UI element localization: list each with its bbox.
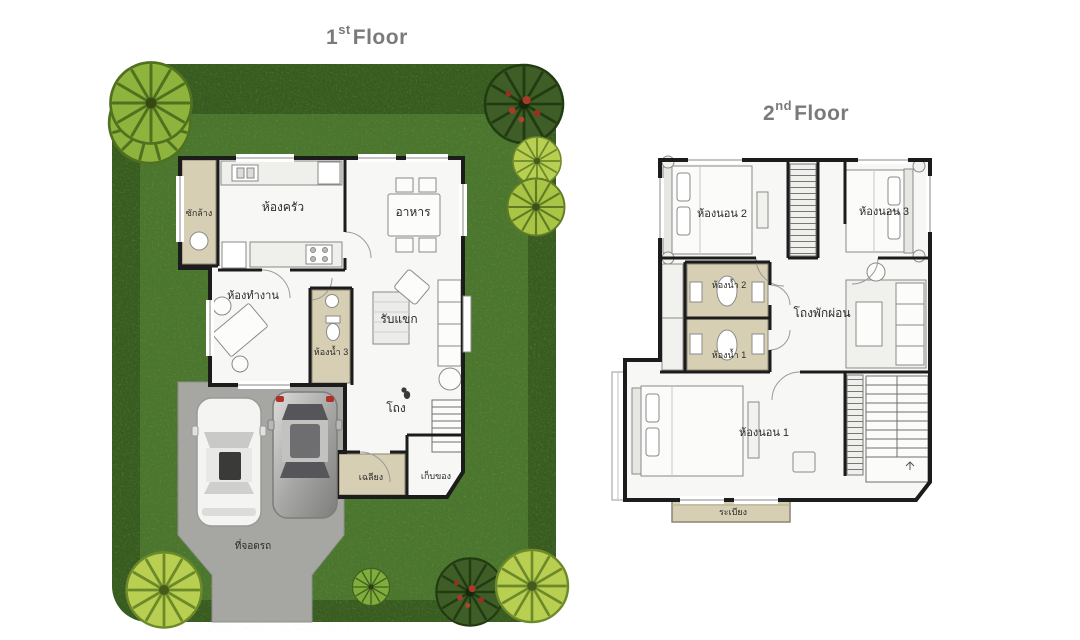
label-office: ห้องทำงาน bbox=[227, 290, 279, 302]
label-carpark: ที่จอดรถ bbox=[235, 538, 271, 552]
floor2-title-word: Floor bbox=[794, 102, 849, 125]
label-living: รับแขก bbox=[380, 312, 417, 326]
floor2-stairs bbox=[866, 376, 928, 482]
label-laundry: ซักล้าง bbox=[186, 208, 213, 218]
floor2-plan: ห้องนอน 2 ห้องนอน 3 ห้องน้ำ 2 ห้องน้ำ 1 … bbox=[612, 156, 934, 522]
label-kitchen: ห้องครัว bbox=[262, 200, 304, 214]
tree-topright-red bbox=[485, 65, 563, 143]
floor1-stairs bbox=[432, 400, 462, 452]
floorplan-graphic: ซักล้าง ห้องครัว อาหาร ห้องทำงาน ห้องน้ำ… bbox=[0, 0, 1080, 640]
washing-machine bbox=[190, 232, 208, 250]
label-dining: อาหาร bbox=[395, 205, 431, 219]
bath-closets bbox=[662, 264, 683, 370]
label-bathroom2: ห้องน้ำ 2 bbox=[712, 278, 746, 290]
floor1-title-word: Floor bbox=[353, 26, 408, 49]
floor1-title: 1stFloor bbox=[326, 24, 408, 50]
label-hall: โถง bbox=[386, 401, 406, 415]
label-bedroom2: ห้องนอน 2 bbox=[697, 208, 747, 220]
label-bathroom3: ห้องน้ำ 3 bbox=[314, 345, 348, 357]
floor1-title-number: 1 bbox=[326, 26, 338, 49]
white-car bbox=[192, 398, 266, 526]
label-bedroom1: ห้องนอน 1 bbox=[739, 427, 789, 439]
bedroom1-wardrobe bbox=[847, 375, 863, 475]
label-porch: เฉลียง bbox=[359, 472, 383, 482]
tree-right-2 bbox=[508, 179, 565, 236]
bay-window bbox=[463, 296, 471, 352]
floor1-title-suffix: st bbox=[338, 22, 351, 37]
bathroom3-fixtures bbox=[326, 295, 341, 341]
silver-car bbox=[268, 392, 342, 518]
tree-bottom-red bbox=[436, 558, 503, 625]
floor1-plan: ซักล้าง ห้องครัว อาหาร ห้องทำงาน ห้องน้ำ… bbox=[100, 63, 568, 628]
label-lounge: โถงพักผ่อน bbox=[793, 306, 850, 320]
label-balcony: ระเบียง bbox=[719, 507, 747, 517]
label-storage: เก็บของ bbox=[421, 469, 451, 481]
tree-bottomright bbox=[496, 550, 568, 622]
floor2-title-suffix: nd bbox=[775, 98, 792, 113]
floor2-title-number: 2 bbox=[763, 102, 775, 125]
bush-bottom bbox=[352, 568, 389, 605]
floor2-title: 2ndFloor bbox=[763, 100, 849, 126]
label-bathroom1: ห้องน้ำ 1 bbox=[712, 348, 746, 360]
label-bedroom3: ห้องนอน 3 bbox=[859, 206, 909, 218]
tree-bottomleft bbox=[127, 553, 202, 628]
hall-closet bbox=[790, 164, 816, 256]
floorplan-canvas: ซักล้าง ห้องครัว อาหาร ห้องทำงาน ห้องน้ำ… bbox=[0, 0, 1080, 640]
